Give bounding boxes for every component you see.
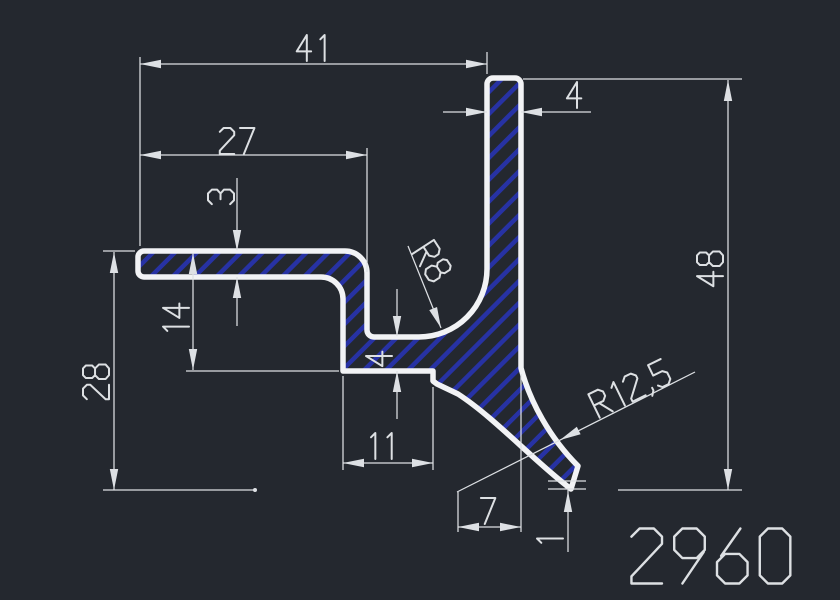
dim-text-d41 bbox=[297, 35, 325, 61]
dim-text-d11 bbox=[371, 433, 392, 459]
cad-drawing-viewport bbox=[0, 0, 840, 600]
dim-text-d4t bbox=[567, 82, 581, 108]
dim-text-d1 bbox=[537, 538, 563, 542]
dimension-arrowhead-icon bbox=[466, 60, 487, 68]
dimension-arrowhead-icon bbox=[140, 60, 161, 68]
dimension-arrowhead-icon bbox=[558, 427, 581, 444]
dimension-arrowhead-icon bbox=[500, 523, 521, 531]
dimension-arrowhead-icon bbox=[466, 108, 487, 116]
dimension-texts bbox=[83, 35, 723, 543]
dimension-arrowhead-icon bbox=[724, 80, 732, 101]
extension-lines bbox=[103, 52, 742, 532]
reference-dot bbox=[253, 488, 257, 492]
part-number bbox=[631, 529, 790, 584]
dimension-lines bbox=[114, 64, 728, 552]
dimension-arrowhead-icon bbox=[429, 307, 445, 330]
dimension-arrowhead-icon bbox=[521, 108, 542, 116]
dimension-arrows bbox=[110, 60, 732, 531]
cad-canvas bbox=[0, 0, 840, 600]
dimension-arrowhead-icon bbox=[110, 469, 118, 490]
dimension-arrowhead-icon bbox=[724, 469, 732, 490]
part-number-text bbox=[631, 529, 790, 584]
profile-section bbox=[138, 78, 578, 489]
dim-text-d27 bbox=[220, 128, 255, 154]
dimension-arrowhead-icon bbox=[189, 349, 197, 370]
dim-text-d3 bbox=[208, 190, 234, 204]
dimension-arrowhead-icon bbox=[233, 230, 241, 251]
dim-text-d48 bbox=[697, 252, 723, 287]
dimension-arrowhead-icon bbox=[346, 151, 367, 159]
dimension-arrowhead-icon bbox=[110, 252, 118, 273]
dimension-arrowhead-icon bbox=[412, 459, 433, 467]
dim-text-d14 bbox=[163, 303, 189, 330]
dimension-arrowhead-icon bbox=[458, 523, 479, 531]
dim-text-r8 bbox=[412, 240, 453, 283]
dimension-arrowhead-icon bbox=[233, 277, 241, 298]
dimension-arrowhead-icon bbox=[393, 371, 401, 392]
dimension-arrowhead-icon bbox=[140, 151, 161, 159]
dimension-arrowhead-icon bbox=[343, 459, 364, 467]
dimension-arrowhead-icon bbox=[393, 316, 401, 337]
dimension-arrowhead-icon bbox=[564, 491, 572, 512]
dim-text-d28 bbox=[83, 365, 109, 400]
dim-text-d7 bbox=[481, 498, 495, 524]
profile-outline bbox=[138, 78, 578, 489]
